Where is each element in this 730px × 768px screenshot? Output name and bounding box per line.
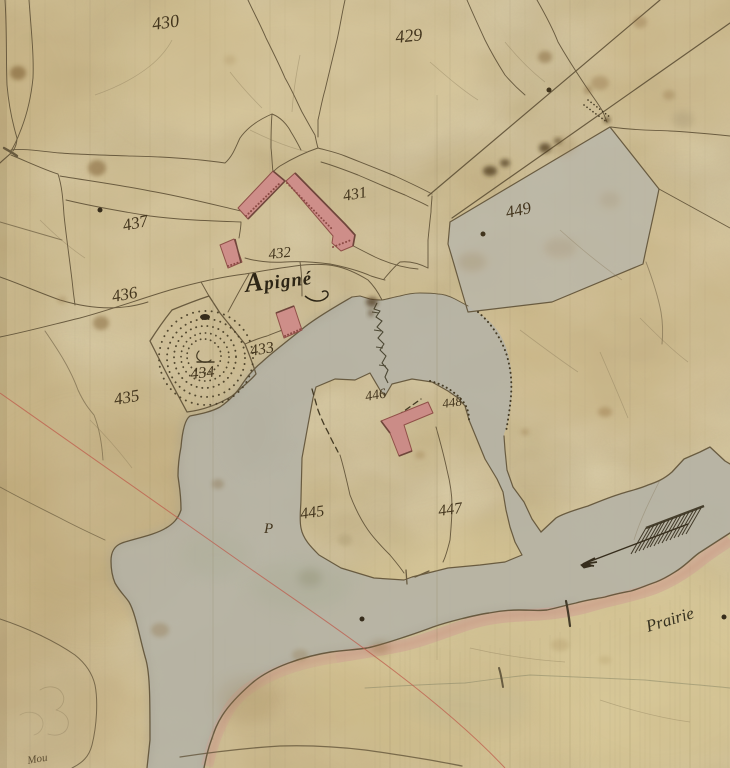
svg-text:P: P	[263, 521, 273, 537]
svg-text:447: 447	[437, 500, 464, 520]
svg-text:429: 429	[394, 24, 423, 47]
svg-text:434: 434	[190, 364, 216, 383]
svg-text:445: 445	[299, 503, 325, 523]
svg-text:430: 430	[151, 10, 181, 34]
svg-text:432: 432	[268, 245, 293, 263]
svg-text:448: 448	[441, 393, 463, 411]
